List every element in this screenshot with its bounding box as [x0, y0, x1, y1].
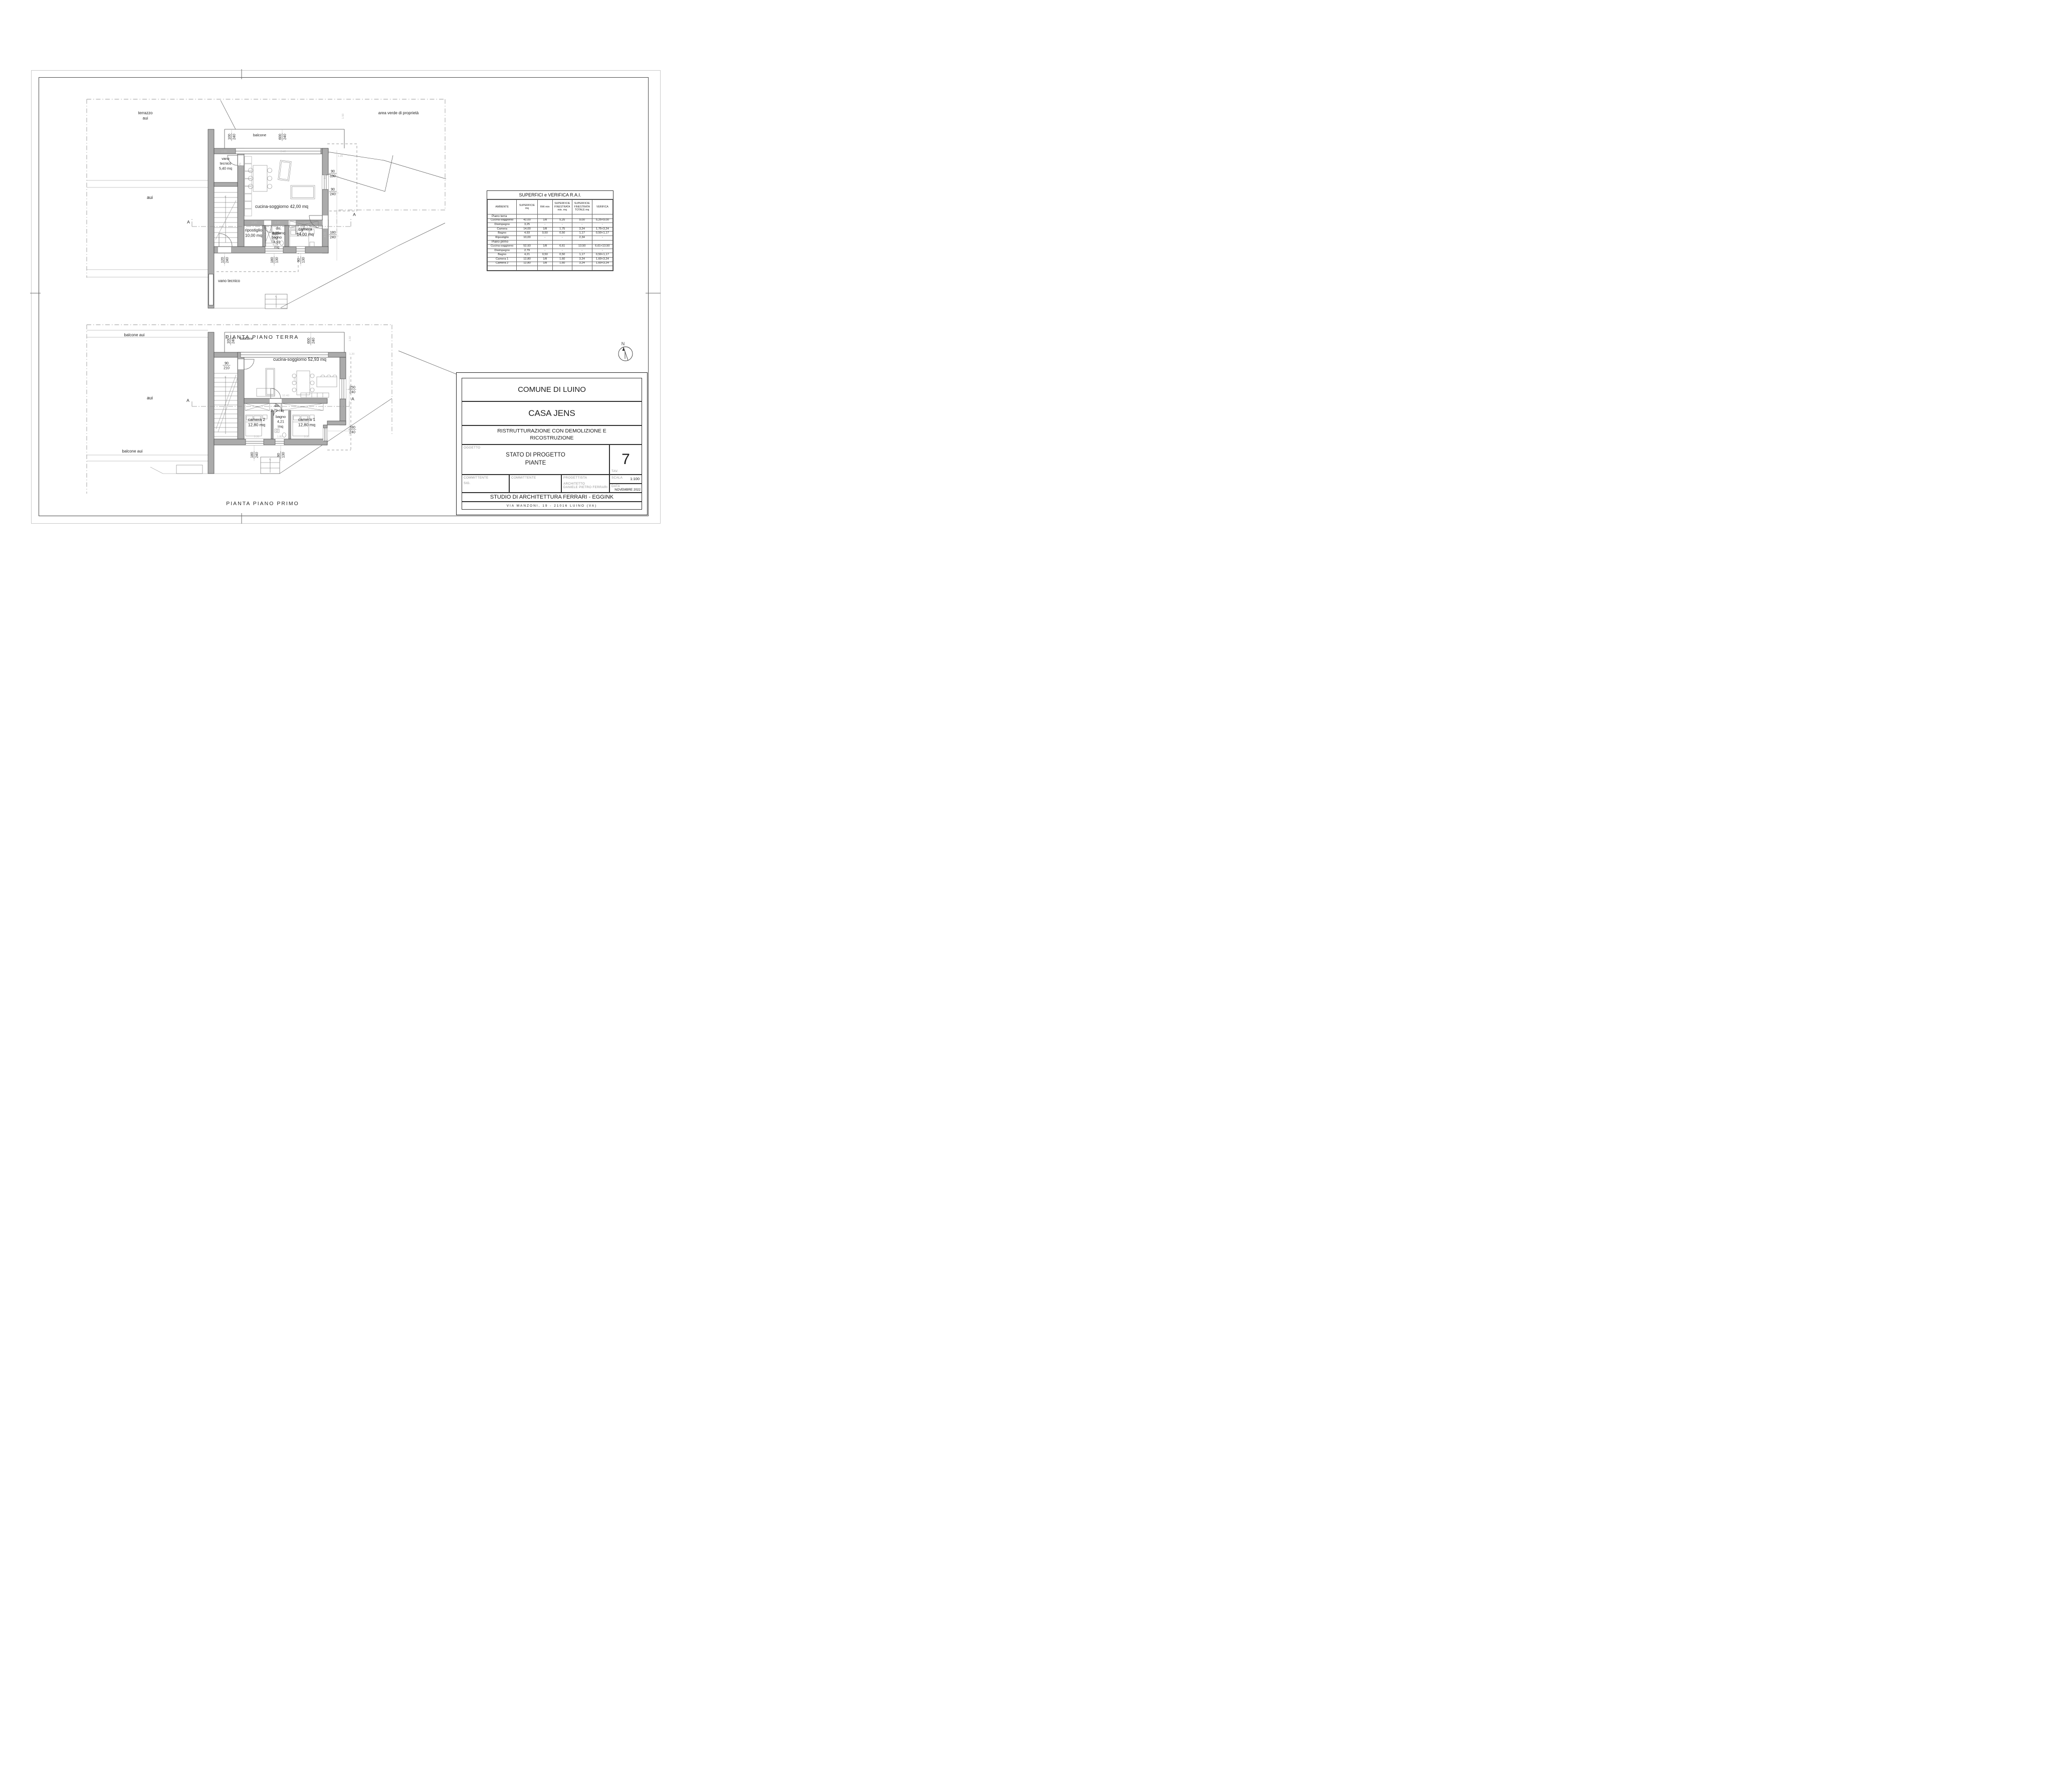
minor-dim: 1.55 — [280, 403, 283, 408]
svg-text:130: 130 — [302, 257, 306, 263]
rai-cell: 1,17 — [572, 253, 592, 258]
tb-committente2-label: COMMITTENTE — [511, 476, 536, 480]
svg-text:130: 130 — [276, 257, 279, 263]
minor-dim: 8.40 — [281, 150, 286, 153]
label-vano-tecnico-basso: vano tecnico — [218, 279, 240, 283]
minor-dim: 4.00 — [239, 416, 242, 422]
rai-cell: 14,00 — [517, 227, 537, 232]
rai-cell: 1/8 — [537, 227, 552, 232]
svg-text:130: 130 — [282, 452, 286, 458]
minor-dim: 2.70 — [239, 163, 242, 168]
rai-cell — [552, 214, 572, 219]
room-camera-2: camera 212,80 mq — [248, 417, 266, 427]
window-dim-fraction: 180130 — [271, 257, 279, 264]
svg-text:240: 240 — [312, 338, 316, 344]
svg-text:240: 240 — [284, 134, 287, 140]
window-dim-fraction: 90130 — [297, 257, 305, 264]
rai-section-row: Piano primo — [488, 240, 613, 245]
ff-dashed-outline — [327, 357, 351, 450]
ff-wardrobes — [245, 403, 323, 410]
room-cucina-soggiorno: cucina-soggiorno 42,00 mq — [255, 204, 308, 209]
rai-cell: 1,60<3,24 — [592, 262, 612, 266]
tb-studio: STUDIO DI ARCHITETTURA FERRARI - EGGINK — [490, 494, 613, 500]
rai-cell — [552, 266, 572, 271]
minor-dim: 5.00 — [324, 174, 327, 179]
rai-cell: - — [592, 236, 612, 240]
window-dim-fraction: 100240 — [228, 133, 236, 141]
rai-cell: 1,60<3,24 — [592, 257, 612, 262]
svg-text:130: 130 — [330, 175, 336, 178]
section-marker-a-left: A — [186, 398, 189, 403]
svg-text:100: 100 — [228, 134, 232, 140]
window-dim-fraction: 120240 — [221, 257, 229, 264]
svg-text:180: 180 — [330, 231, 336, 235]
svg-text:240: 240 — [349, 391, 355, 394]
svg-text:240: 240 — [226, 257, 230, 263]
tb-committente1-sub: SIG. — [464, 482, 471, 485]
rai-cell: Cucina-soggiorno — [488, 218, 517, 223]
rai-cell: 9,00 — [572, 218, 592, 223]
minor-dim: 1.80 — [277, 435, 283, 438]
svg-text:90: 90 — [277, 453, 281, 457]
rai-cell: - — [552, 223, 572, 228]
first-floor-caption: PIANTA PIANO PRIMO — [226, 501, 299, 507]
rai-cell: 42,00 — [517, 218, 537, 223]
rai-col-header: VERIFICA — [592, 200, 612, 214]
svg-text:240: 240 — [233, 134, 237, 140]
rai-cell: Ripostiglio — [488, 236, 517, 240]
tb-project: CASA JENS — [528, 408, 575, 418]
rai-cell: 0,50<1,17 — [592, 253, 612, 258]
rai-cell: - — [537, 236, 552, 240]
rai-cell: Bagno — [488, 232, 517, 236]
tb-oggetto-1: STATO DI PROGETTO — [506, 452, 565, 460]
rai-row: Disimpegno3,25---- — [488, 223, 613, 228]
rai-cell — [537, 266, 552, 271]
room-cucina-soggiorno: cucina-soggiorno 52,93 mq — [273, 357, 326, 362]
rai-row: Disimpegno2,79---- — [488, 249, 613, 253]
rai-cell — [592, 266, 612, 271]
rai-cell: 12,80 — [517, 257, 537, 262]
tb-comune: COMUNE DI LUINO — [518, 385, 586, 394]
rai-cell — [552, 240, 572, 245]
tb-progettista-2: DANIELE PIETRO FERRARI — [563, 486, 607, 489]
tb-scala-label: SCALA — [611, 476, 623, 480]
minor-dim: 3.50 — [304, 221, 310, 225]
section-marker-a-right: A — [353, 212, 356, 217]
rai-cell: Camera 1 — [488, 257, 517, 262]
minor-dim: 10.40 — [282, 394, 289, 397]
label-balcone: balcone — [253, 133, 266, 137]
rai-cell: 1,75 — [552, 227, 572, 232]
rai-row: Bagno4,930,500,501,170,50<1,17 — [488, 232, 613, 236]
tb-progettista-1: ARCHITETTO — [563, 482, 585, 486]
north-label: N — [621, 341, 625, 346]
tb-address-box: VIA MANZONI, 19 - 21016 LUINO (VA) — [462, 502, 642, 510]
tb-data-box: DATA NOVEMBRE 2022 — [609, 484, 642, 493]
minor-dim: 1.50 — [349, 336, 352, 342]
tb-progettista-box: PROGETTISTA ARCHITETTO DANIELE PIETRO FE… — [561, 475, 609, 493]
rai-row: Camera 212,801/81,603,241,60<3,24 — [488, 262, 613, 266]
room-ripostiglio: ripostiglio10,00 mq — [245, 228, 263, 238]
rai-row: Ripostiglio10,00--2,34- — [488, 236, 613, 240]
rai-cell: Camera 2 — [488, 262, 517, 266]
rai-cell — [592, 214, 612, 219]
rai-col-header: AMBIENTE — [488, 200, 517, 214]
rai-cell: - — [592, 223, 612, 228]
label-balcone-aui-top: balcone aui — [124, 333, 145, 337]
label-aui: aui — [147, 395, 153, 400]
rai-col-header: RAI min — [537, 200, 552, 214]
rai-cell: Piano primo — [488, 240, 517, 245]
rai-cell: 52,93 — [517, 245, 537, 249]
minor-dim: 2.00 — [222, 150, 227, 153]
svg-text:600: 600 — [279, 134, 282, 140]
label-area-verde: area verde di proprietà — [378, 111, 419, 115]
rai-row: Cucina-soggiorno42,001/85,259,005,25<9,0… — [488, 218, 613, 223]
rai-col-header: SUPERFICIEmq — [517, 200, 537, 214]
rai-cell: 1,60 — [552, 257, 572, 262]
tb-committente1-box: COMMITTENTE SIG. — [462, 475, 509, 493]
drawing-sheet: PIANTA PIANO TERRA PIANTA PIANO PRIMO N … — [0, 0, 691, 592]
rai-cell: 10,00 — [517, 236, 537, 240]
rai-cell: 2,79 — [517, 249, 537, 253]
rai-cell — [517, 214, 537, 219]
rai-cell: 0,50 — [552, 253, 572, 258]
svg-text:100: 100 — [227, 338, 231, 344]
minor-dim: 2.50 — [252, 221, 257, 225]
ff-stairs — [214, 373, 238, 436]
rai-cell: 1,75<3,24 — [592, 227, 612, 232]
rai-cell: 0,50 — [537, 232, 552, 236]
rai-cell: 12,80 — [517, 262, 537, 266]
minor-dim: 2.35 — [272, 238, 275, 244]
window-dim-fraction: 250240 — [349, 386, 356, 394]
rai-cell: - — [552, 236, 572, 240]
minor-dim: 1.20 — [338, 155, 343, 158]
svg-text:210: 210 — [224, 367, 230, 370]
rai-cell — [517, 240, 537, 245]
rai-cell — [572, 240, 592, 245]
rai-row: Bagno4,210,500,501,170,50<1,17 — [488, 253, 613, 258]
rai-cell: 5,25<9,00 — [592, 218, 612, 223]
ff-exterior-stair — [261, 457, 280, 474]
rai-cell: Disimpegno — [488, 223, 517, 228]
window-dim-fraction: 600240 — [307, 337, 315, 345]
svg-text:240: 240 — [349, 431, 355, 434]
minor-dim: 2.30 — [277, 425, 280, 430]
rai-cell: 1/8 — [537, 262, 552, 266]
rai-cell — [488, 266, 517, 271]
rai-cell — [517, 266, 537, 271]
svg-text:180: 180 — [349, 426, 355, 429]
rai-cell: - — [592, 249, 612, 253]
svg-text:240: 240 — [330, 236, 336, 240]
svg-text:180: 180 — [271, 257, 274, 263]
rai-cell: 1,17 — [572, 232, 592, 236]
tb-scala-value: 1:100 — [630, 477, 640, 481]
rai-table-title: SUPERFICI e VERIFICA R.A.I. — [487, 191, 613, 199]
tb-oggetto-2: PIANTE — [525, 460, 546, 468]
label-balcone-aui-bottom: balcone aui — [122, 449, 143, 454]
section-marker-a-right: A — [351, 396, 354, 401]
tb-tav-number: 7 — [621, 451, 630, 468]
tb-oggetto-label: OGGETTO — [464, 446, 480, 451]
rai-cell: 0,50<1,17 — [592, 232, 612, 236]
rai-cell: 4,21 — [517, 253, 537, 258]
label-aui: aui — [147, 195, 153, 200]
rai-cell: 2,34 — [572, 236, 592, 240]
tb-project-box: CASA JENS — [462, 401, 642, 425]
rai-cell: Camera — [488, 227, 517, 232]
rai-row: Camera 112,801/81,603,241,60<3,24 — [488, 257, 613, 262]
window-dim-fraction: 600240 — [279, 133, 287, 141]
minor-dim: 1.55 — [264, 230, 267, 236]
svg-text:250: 250 — [349, 386, 355, 389]
room-vano-tecnico: vanotecnico5,40 mq — [219, 156, 232, 170]
label-terrazzo-aui: terrazzoaui — [138, 111, 153, 121]
tb-studio-box: STUDIO DI ARCHITETTURA FERRARI - EGGINK — [462, 493, 642, 502]
rai-cell: 1/8 — [537, 245, 552, 249]
room-dis: dis.3,25 mq — [272, 226, 285, 236]
gf-kitchen-units — [245, 156, 252, 216]
window-dim-fraction: 180240 — [251, 452, 259, 459]
tb-address: VIA MANZONI, 19 - 21016 LUINO (VA) — [507, 504, 597, 508]
tb-committente1-label: COMMITTENTE — [464, 476, 488, 480]
svg-text:90: 90 — [331, 188, 335, 191]
rai-section-row: Piano terra — [488, 214, 613, 219]
svg-text:180: 180 — [251, 452, 254, 458]
title-block: COMUNE DI LUINO CASA JENS RISTRUTTURAZIO… — [456, 372, 648, 515]
ff-terrain-lines — [280, 351, 458, 474]
rai-row — [488, 266, 613, 271]
rai-col-header: SUPERFICIEFINESTRATATOTALE mq — [572, 200, 592, 214]
tb-intervention-2: RICOSTRUZIONE — [530, 435, 574, 442]
section-marker-a-left: A — [187, 219, 190, 225]
rai-cell — [572, 266, 592, 271]
rai-cell: Cucina-soggiorno — [488, 245, 517, 249]
svg-text:240: 240 — [330, 193, 336, 196]
rai-cell: 0,50 — [537, 253, 552, 258]
rai-cell — [537, 240, 552, 245]
rai-cell — [592, 240, 612, 245]
minor-dim: 1.50 — [342, 114, 345, 119]
tb-intervention-1: RISTRUTTURAZIONE CON DEMOLIZIONE E — [497, 428, 606, 435]
tb-data-label: DATA — [611, 485, 620, 488]
rai-cell: 3,25 — [517, 223, 537, 228]
label-balcone: balcone — [240, 336, 253, 341]
gf-exterior-stair — [214, 294, 287, 309]
rai-cell: 5,25 — [552, 218, 572, 223]
window-dim-fraction: 90130 — [277, 452, 285, 459]
rai-cell: Piano terra — [488, 214, 517, 219]
rai-cell: - — [537, 249, 552, 253]
ground-floor-caption: PIANTA PIANO TERRA — [226, 334, 299, 340]
gf-terrain-lines — [221, 100, 446, 308]
north-arrow: N — [618, 341, 633, 361]
minor-dim: 1.20 — [349, 353, 355, 356]
rai-table: SUPERFICI e VERIFICA R.A.I. AMBIENTESUPE… — [487, 190, 613, 271]
rai-cell: Disimpegno — [488, 249, 517, 253]
svg-text:240: 240 — [256, 452, 259, 458]
minor-dim: 3.20 — [304, 435, 310, 438]
rai-cell: 1,60 — [552, 262, 572, 266]
rai-cell: 4,93 — [517, 232, 537, 236]
minor-dim: 5.09 — [294, 377, 297, 382]
rai-col-header: SUPERFICIEFINESTRATAmin. mq — [552, 200, 572, 214]
tb-scala-box: SCALA 1:100 — [609, 475, 642, 484]
rai-cell — [537, 214, 552, 219]
svg-text:90: 90 — [331, 170, 335, 173]
window-dim-fraction: 180240 — [329, 231, 337, 239]
rai-cell: 0,50 — [552, 232, 572, 236]
rai-cell: 13,50 — [572, 245, 592, 249]
svg-text:120: 120 — [221, 257, 225, 263]
tb-data-value: NOVEMBRE 2022 — [614, 488, 641, 492]
svg-text:240: 240 — [232, 338, 236, 344]
rai-cell: 6,61 — [552, 245, 572, 249]
rai-cell: 3,24 — [572, 257, 592, 262]
minor-dim: 3.20 — [254, 435, 260, 438]
rai-cell: 3,24 — [572, 262, 592, 266]
svg-text:90: 90 — [297, 258, 301, 262]
rai-cell: 3,24 — [572, 227, 592, 232]
tb-intervention-box: RISTRUTTURAZIONE CON DEMOLIZIONE E RICOS… — [462, 425, 642, 445]
tb-progettista-label: PROGETTISTA — [563, 476, 587, 480]
tb-tav-label: TAV. — [611, 470, 618, 473]
room-camera: camera14,00 mq — [297, 227, 314, 237]
rai-cell: - — [537, 223, 552, 228]
rai-cell — [572, 214, 592, 219]
minor-dim: 4.00 — [324, 232, 327, 238]
svg-text:600: 600 — [307, 338, 311, 344]
rai-cell: - — [572, 223, 592, 228]
svg-text:90: 90 — [225, 362, 229, 365]
rai-cell: - — [552, 249, 572, 253]
window-dim-fraction: 90240 — [329, 188, 337, 196]
window-dim-fraction: 180240 — [349, 426, 356, 434]
rai-row: Cucina-soggiorno52,931/86,6113,506,61<13… — [488, 245, 613, 249]
tb-committente2-box: COMMITTENTE — [509, 475, 561, 493]
window-dim-fraction: 90130 — [329, 170, 337, 178]
rai-cell: 1/8 — [537, 218, 552, 223]
minor-dim: 2.10 — [275, 221, 280, 225]
room-camera-1: camera 112,80 mq — [298, 417, 316, 427]
gf-stairs — [214, 192, 238, 243]
rai-row: Camera14,001/81,753,241,75<3,24 — [488, 227, 613, 232]
rai-cell: 1/8 — [537, 257, 552, 262]
tb-oggetto-box: OGGETTO STATO DI PROGETTO PIANTE — [462, 445, 609, 475]
tb-comune-box: COMUNE DI LUINO — [462, 378, 642, 401]
rai-cell: 6,61<13,50 — [592, 245, 612, 249]
tb-tav-box: 7 TAV. — [609, 445, 642, 475]
rai-cell: Bagno — [488, 253, 517, 258]
rai-cell: - — [572, 249, 592, 253]
window-dim-fraction: 90210 — [223, 362, 231, 370]
